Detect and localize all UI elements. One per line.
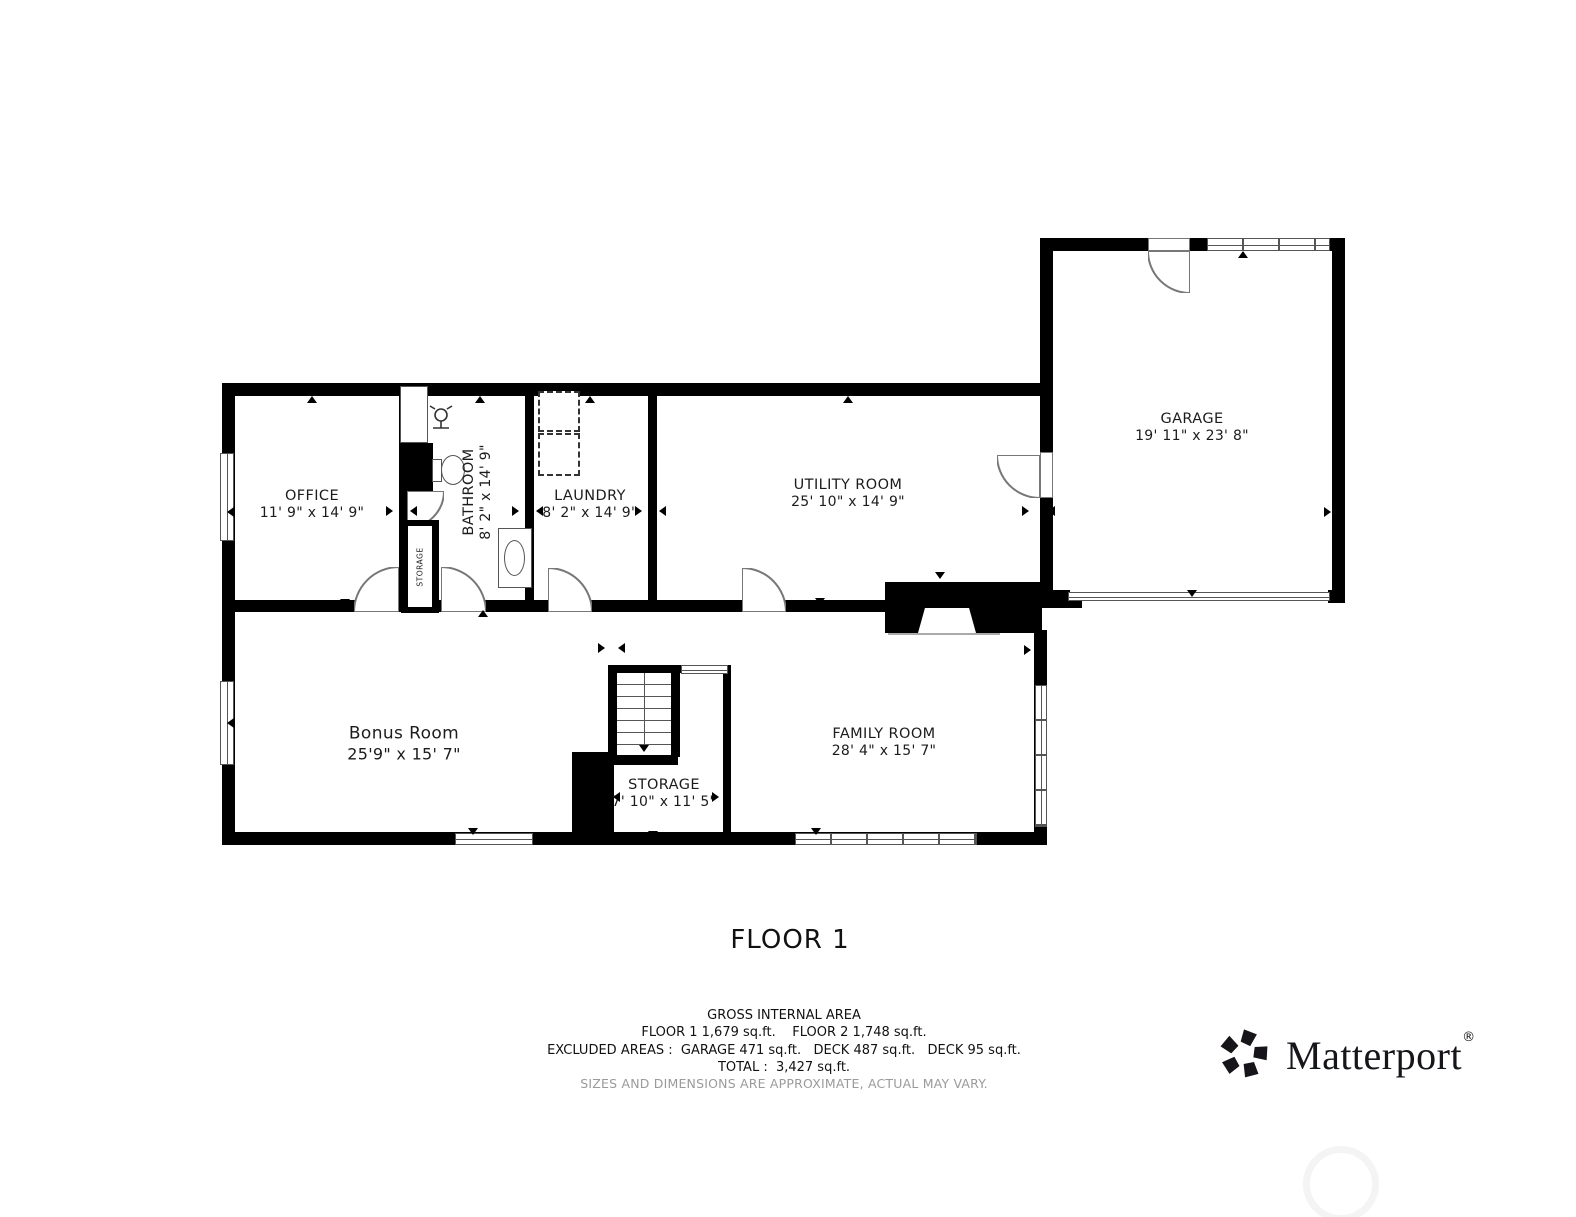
dimension-marker (478, 610, 488, 617)
dimension-marker (618, 643, 625, 653)
sink-icon (504, 540, 525, 576)
door-swing-icon (548, 568, 592, 612)
dimension-marker (1187, 590, 1197, 597)
area-excluded: EXCLUDED AREAS : GARAGE 471 sq.ft. DECK … (547, 1043, 1021, 1058)
dimension-marker (935, 572, 945, 579)
door-swing-icon (742, 568, 786, 612)
door-leaf (1040, 452, 1053, 498)
wall (608, 665, 617, 765)
wall (671, 665, 680, 757)
floor-plan-page: STORAGE OFFICE 11' 9" x 14' 9" BATHROOM … (0, 0, 1576, 1217)
wall (1040, 238, 1053, 452)
dimension-marker (648, 831, 658, 838)
area-floors: FLOOR 1 1,679 sq.ft. FLOOR 2 1,748 sq.ft… (547, 1025, 1021, 1040)
dimension-marker (227, 718, 234, 728)
door-swing-icon (997, 455, 1040, 498)
dimension-marker (1324, 507, 1331, 517)
matterport-logo: Matterport® (1216, 1026, 1476, 1082)
room-label-garage: GARAGE 19' 11" x 23' 8" (1135, 410, 1249, 446)
dimension-marker (811, 828, 821, 835)
dimension-marker (613, 792, 620, 802)
registered-mark: ® (1462, 1030, 1476, 1045)
room-label-laundry: LAUNDRY 8' 2" x 14' 9" (542, 487, 637, 523)
door-leaf (1148, 238, 1190, 251)
wall (648, 383, 657, 612)
room-label-family: FAMILY ROOM 28' 4" x 15' 7" (832, 725, 937, 761)
floor-caption: FLOOR 1 (730, 925, 849, 955)
dimension-marker (468, 828, 478, 835)
door-swing-icon (1148, 251, 1190, 293)
dimension-marker (512, 506, 519, 516)
window (1207, 238, 1330, 251)
dimension-marker (340, 599, 350, 606)
dryer-icon (538, 433, 580, 476)
dimension-marker (1024, 645, 1031, 655)
window (681, 665, 728, 674)
wall (1040, 238, 1150, 251)
dimension-marker (585, 396, 595, 403)
dimension-marker (536, 506, 543, 516)
dimension-marker (386, 506, 393, 516)
wall (1190, 238, 1207, 251)
dimension-marker (227, 507, 234, 517)
area-total: TOTAL : 3,427 sq.ft. (547, 1060, 1021, 1075)
room-label-bathroom: BATHROOM 8' 2" x 14' 9" (460, 444, 496, 539)
wall (1328, 590, 1345, 603)
wall (572, 752, 614, 845)
dimension-marker (1022, 506, 1029, 516)
wall (222, 383, 1040, 396)
dimension-marker (635, 506, 642, 516)
area-note: SIZES AND DIMENSIONS ARE APPROXIMATE, AC… (547, 1077, 1021, 1092)
window (455, 833, 533, 845)
matterport-wordmark: Matterport® (1286, 1030, 1476, 1079)
room-label-office: OFFICE 11' 9" x 14' 9" (260, 487, 365, 523)
wall (399, 443, 433, 492)
room-label-storage: STORAGE 7' 10" x 11' 5" (612, 776, 717, 812)
dimension-marker (843, 396, 853, 403)
porch-step-line (888, 633, 1000, 635)
washer-icon (538, 391, 580, 432)
closet-label: STORAGE (416, 547, 425, 586)
dimension-marker (410, 506, 417, 516)
dimension-marker (815, 598, 825, 605)
area-heading: GROSS INTERNAL AREA (547, 1008, 1021, 1023)
room-label-bonus: Bonus Room 25'9" x 15' 7" (347, 723, 461, 764)
dimension-marker (307, 396, 317, 403)
room-label-utility: UTILITY ROOM 25' 10" x 14' 9" (791, 476, 905, 512)
dimension-marker (1238, 251, 1248, 258)
wall (1332, 238, 1345, 603)
window (1035, 685, 1047, 827)
shower-fixture-icon (424, 404, 454, 438)
dimension-marker (659, 506, 666, 516)
dimension-marker (1048, 506, 1055, 516)
watermark-circle (1303, 1146, 1379, 1217)
stairs-down-arrow (639, 745, 649, 752)
garage-door (1068, 592, 1330, 601)
window (795, 833, 977, 845)
stairs-icon (617, 673, 671, 755)
matterport-mark-icon (1216, 1026, 1272, 1082)
dimension-marker (475, 396, 485, 403)
dimension-marker (712, 792, 719, 802)
door-swing-icon (354, 567, 399, 612)
porch-step-notch (918, 608, 976, 633)
wall (723, 665, 731, 845)
dimension-marker (598, 643, 605, 653)
window (220, 453, 234, 541)
door-swing-icon (441, 567, 486, 612)
area-summary: GROSS INTERNAL AREA FLOOR 1 1,679 sq.ft.… (547, 1008, 1021, 1094)
